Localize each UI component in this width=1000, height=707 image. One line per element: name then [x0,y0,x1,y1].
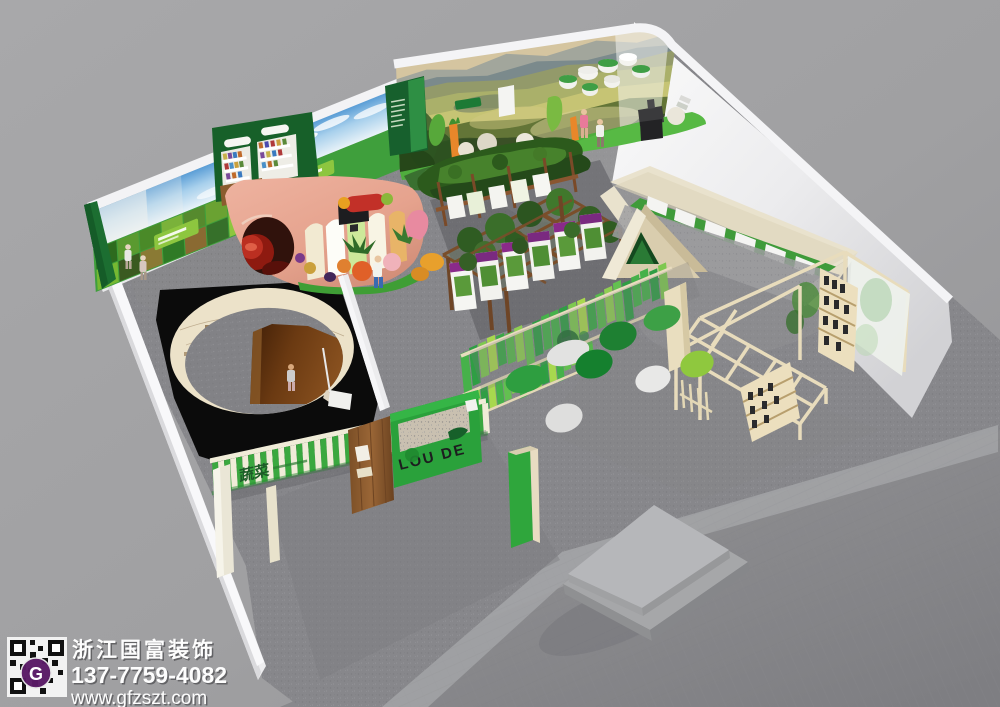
svg-text:G: G [29,664,43,684]
svg-text:137-7759-4082: 137-7759-4082 [71,662,227,688]
svg-text:www.gfzszt.com: www.gfzszt.com [70,688,207,707]
svg-text:浙江国富装饰: 浙江国富装饰 [72,638,216,662]
